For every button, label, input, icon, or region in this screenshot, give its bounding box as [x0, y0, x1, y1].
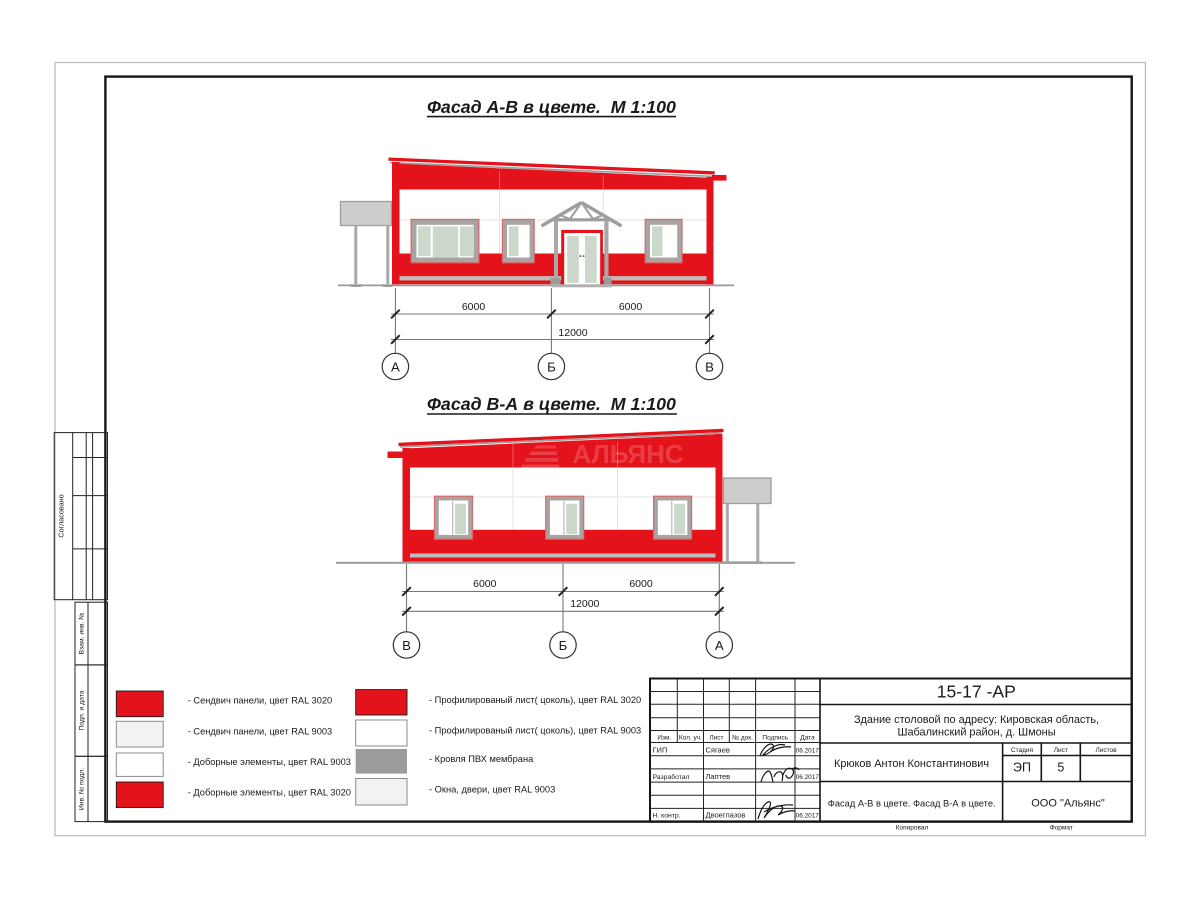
- svg-text:Кол. уч.: Кол. уч.: [679, 734, 702, 741]
- svg-text:Подпись: Подпись: [762, 734, 788, 741]
- svg-text:Фасад В-А в цвете. М 1:100: Фасад В-А в цвете. М 1:100: [427, 394, 676, 414]
- svg-text:Б: Б: [559, 638, 568, 653]
- svg-text:В: В: [705, 359, 714, 374]
- svg-text:Взам. инв. №: Взам. инв. №: [79, 612, 86, 654]
- svg-text:5: 5: [1057, 761, 1064, 775]
- svg-text:Инв. № подл.: Инв. № подл.: [79, 768, 86, 810]
- svg-text:А: А: [715, 638, 724, 653]
- svg-text:№ док.: № док.: [732, 734, 753, 741]
- svg-text:Фасад А-В в цвете. Фасад В-А в: Фасад А-В в цвете. Фасад В-А в цвете.: [828, 799, 996, 809]
- svg-text:6000: 6000: [629, 578, 653, 590]
- svg-text:Листов: Листов: [1095, 747, 1117, 754]
- svg-text:Формат: Формат: [1050, 824, 1073, 831]
- svg-text:Лист: Лист: [1054, 747, 1068, 754]
- svg-text:ООО "Альянс": ООО "Альянс": [1031, 798, 1105, 810]
- svg-text:- Доборные элементы, цвет RAL: - Доборные элементы, цвет RAL 3020: [188, 787, 351, 797]
- svg-text:Подп. и дата: Подп. и дата: [79, 690, 86, 730]
- svg-text:6000: 6000: [619, 301, 643, 313]
- svg-text:6000: 6000: [473, 578, 497, 590]
- svg-text:- Профилированый лист( цоколь): - Профилированый лист( цоколь), цвет RAL…: [429, 726, 641, 736]
- svg-text:12000: 12000: [570, 598, 599, 610]
- svg-text:06.2017: 06.2017: [796, 774, 820, 781]
- svg-text:Изм.: Изм.: [657, 734, 671, 741]
- svg-text:А: А: [391, 359, 400, 374]
- svg-text:06.2017: 06.2017: [796, 813, 820, 820]
- svg-text:- Сендвич панели, цвет RAL 302: - Сендвич панели, цвет RAL 3020: [188, 696, 333, 706]
- svg-text:В: В: [402, 638, 411, 653]
- svg-text:ЭП: ЭП: [1013, 761, 1031, 775]
- svg-text:Стадия: Стадия: [1011, 747, 1034, 754]
- svg-text:Копировал: Копировал: [896, 824, 929, 831]
- svg-text:Дата: Дата: [800, 734, 815, 741]
- svg-text:06.2017: 06.2017: [796, 748, 820, 755]
- svg-text:Б: Б: [547, 359, 556, 374]
- svg-text:- Окна, двери, цвет RAL 9003: - Окна, двери, цвет RAL 9003: [429, 784, 555, 794]
- svg-text:- Сендвич панели, цвет RAL 900: - Сендвич панели, цвет RAL 9003: [188, 727, 333, 737]
- svg-text:Крюков Антон Константинович: Крюков Антон Константинович: [834, 758, 989, 770]
- svg-text:6000: 6000: [462, 301, 486, 313]
- svg-text:12000: 12000: [558, 327, 587, 339]
- svg-text:Н. контр.: Н. контр.: [653, 813, 681, 820]
- svg-text:- Кровля ПВХ мембрана: - Кровля ПВХ мембрана: [429, 754, 534, 764]
- svg-text:Разработал: Разработал: [653, 773, 690, 781]
- svg-text:15-17 -АР: 15-17 -АР: [937, 682, 1016, 702]
- svg-text:Фасад А-В в цвете. М 1:100: Фасад А-В в цвете. М 1:100: [427, 97, 676, 117]
- svg-text:Здание столовой по адресу: Кир: Здание столовой по адресу: Кировская обл…: [854, 714, 1099, 726]
- svg-text:Лаптев: Лаптев: [706, 772, 731, 781]
- svg-text:АЛЬЯНС: АЛЬЯНС: [572, 439, 683, 469]
- svg-text:- Доборные элементы, цвет RAL: - Доборные элементы, цвет RAL 9003: [188, 757, 351, 767]
- svg-text:Согласовано: Согласовано: [57, 494, 66, 537]
- svg-text:ГИП: ГИП: [653, 746, 668, 755]
- svg-text:- Профилированый лист( цоколь): - Профилированый лист( цоколь), цвет RAL…: [429, 695, 641, 705]
- svg-text:Сягаев: Сягаев: [706, 746, 730, 755]
- svg-text:Двоеглазов: Двоеглазов: [706, 811, 746, 820]
- svg-text:Шабалинский район, д. Шмоны: Шабалинский район, д. Шмоны: [897, 726, 1055, 738]
- svg-text:Лист: Лист: [709, 734, 723, 741]
